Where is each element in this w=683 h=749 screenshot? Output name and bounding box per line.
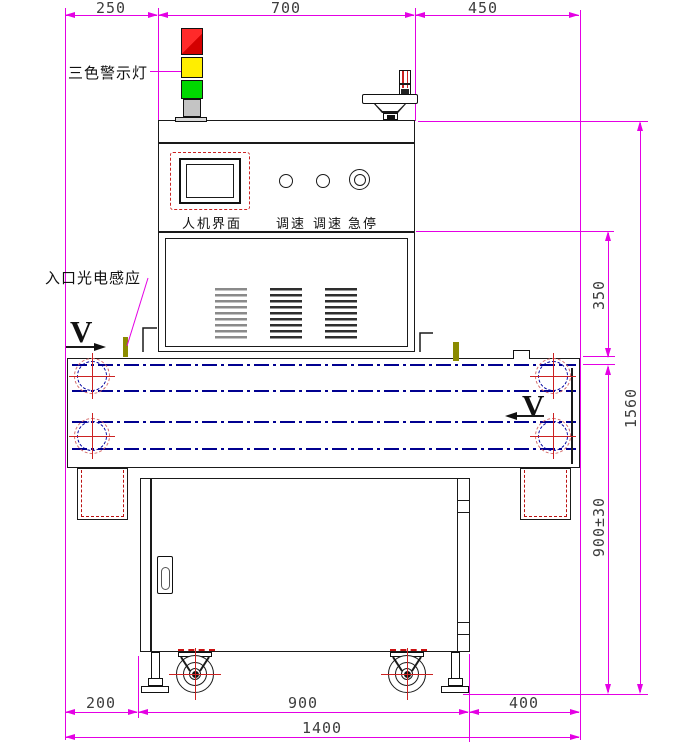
belt-direction-arrow: [505, 412, 517, 420]
dim-arrow: [65, 734, 75, 740]
dim-right-overall: 1560: [623, 378, 639, 438]
hmi-screen[interactable]: [186, 164, 234, 198]
dim-arrow: [65, 12, 75, 18]
dim-arrow: [459, 709, 469, 715]
feeder-cylinder-stripe: [407, 71, 409, 88]
dim-arrow: [138, 709, 148, 715]
extension-line: [469, 654, 470, 742]
door-hinge: [457, 500, 470, 513]
entry-photo-sensor: [123, 337, 128, 357]
extension-line: [158, 8, 159, 120]
dim-arrow: [637, 684, 643, 694]
extension-line: [463, 694, 648, 695]
conveyor-frame: [67, 358, 580, 468]
leveling-foot-nut: [448, 678, 463, 686]
dim-arrow: [148, 12, 158, 18]
dimension-line: [66, 737, 579, 738]
belt-bracket: [420, 333, 433, 352]
roller-centermark: [92, 413, 93, 459]
conveyor-top-bump: [513, 350, 530, 359]
hmi-label: 人机界面: [172, 213, 252, 232]
dim-arrow: [469, 709, 479, 715]
extension-line: [418, 121, 648, 122]
dim-top-left: 250: [81, 0, 141, 16]
tower-light-green-segment: [181, 80, 203, 99]
tower-light-red-segment: [181, 28, 203, 55]
dim-top-right: 450: [453, 0, 513, 16]
leveling-foot-nut: [148, 678, 163, 686]
tower-light-yellow-segment: [181, 57, 203, 78]
extension-line: [65, 8, 66, 740]
feeder-base-hub: [387, 115, 395, 119]
estop-label: 急停: [348, 213, 376, 232]
feeder-cylinder-band: [400, 83, 410, 85]
tower-light-leader-line: [150, 71, 181, 72]
vent-louvers: [325, 288, 357, 340]
dim-bottom-center: 900: [273, 695, 333, 711]
extension-line: [580, 10, 581, 740]
estop-button[interactable]: [354, 174, 366, 186]
roller-centermark: [553, 413, 554, 459]
roller-centermark: [553, 353, 554, 399]
belt-centerline: [72, 421, 576, 423]
dim-arrow: [570, 734, 580, 740]
belt-bracket: [143, 328, 157, 352]
feeder-cylinder-stripe: [402, 71, 404, 88]
dim-arrow: [158, 12, 168, 18]
belt-centerline: [72, 364, 576, 366]
speed-knob-1[interactable]: [279, 174, 293, 188]
exit-photo-sensor: [453, 342, 459, 361]
conveyor-leg-hidden-line: [81, 470, 124, 517]
vent-louvers: [215, 288, 247, 340]
extension-line: [415, 8, 416, 121]
dim-bottom-right: 400: [494, 695, 554, 711]
caster-plate-hidden-line: [390, 649, 427, 651]
entry-sensor-leader-line: [127, 278, 148, 346]
dim-arrow: [569, 12, 579, 18]
dim-top-center: 700: [256, 0, 316, 16]
conveyor-leg-hidden-line: [524, 470, 567, 517]
leveling-foot-base: [141, 686, 169, 693]
speed-knob-1-label: 调速: [276, 213, 304, 232]
extension-line: [416, 231, 614, 232]
leveling-foot-base: [441, 686, 469, 693]
dimension-line: [608, 367, 609, 692]
dim-arrow: [605, 684, 611, 694]
dim-bottom-left: 200: [71, 695, 131, 711]
belt-centerline: [72, 390, 576, 392]
tower-light-pole: [183, 99, 201, 117]
dim-arrow: [637, 121, 643, 131]
dimension-line: [640, 123, 641, 692]
dim-right-lower: 900±30: [591, 490, 607, 564]
base-cabinet: [140, 478, 470, 652]
door-hinge: [457, 622, 470, 635]
dimension-line: [139, 712, 468, 713]
belt-direction-symbol: V: [522, 388, 544, 424]
belt-direction-arrow-line: [516, 415, 544, 417]
tower-light-label: 三色警示灯: [68, 62, 148, 83]
dim-arrow: [405, 12, 415, 18]
dim-arrow: [415, 12, 425, 18]
engineering-drawing: 250 700 450 350 900±30 1560 200 900 400 …: [0, 0, 683, 749]
caster-centermark: [407, 648, 408, 700]
machine-top-band-line: [158, 142, 415, 144]
tower-light-base: [175, 117, 207, 122]
belt-direction-symbol: V: [70, 314, 92, 350]
dimension-line: [66, 712, 137, 713]
vent-louvers: [270, 288, 302, 340]
dim-arrow: [570, 709, 580, 715]
door-handle-grip: [161, 567, 170, 590]
dim-arrow: [605, 231, 611, 241]
feeder-disc: [362, 94, 418, 104]
caster-centermark: [195, 648, 196, 700]
dim-arrow: [605, 365, 611, 375]
roller-centermark: [92, 353, 93, 399]
belt-centerline: [72, 448, 576, 450]
dim-bottom-overall: 1400: [287, 720, 357, 736]
dim-right-upper: 350: [591, 265, 607, 325]
cabinet-door-edge: [150, 478, 152, 652]
conveyor-end-plate: [571, 368, 573, 464]
dimension-line: [608, 233, 609, 356]
speed-knob-2-label: 调速: [313, 213, 341, 232]
dim-arrow: [605, 348, 611, 358]
dimension-line: [470, 712, 579, 713]
caster-plate-hidden-line: [178, 649, 215, 651]
entry-sensor-label: 入口光电感应: [45, 267, 141, 288]
belt-direction-arrow: [94, 343, 106, 351]
speed-knob-2[interactable]: [316, 174, 330, 188]
